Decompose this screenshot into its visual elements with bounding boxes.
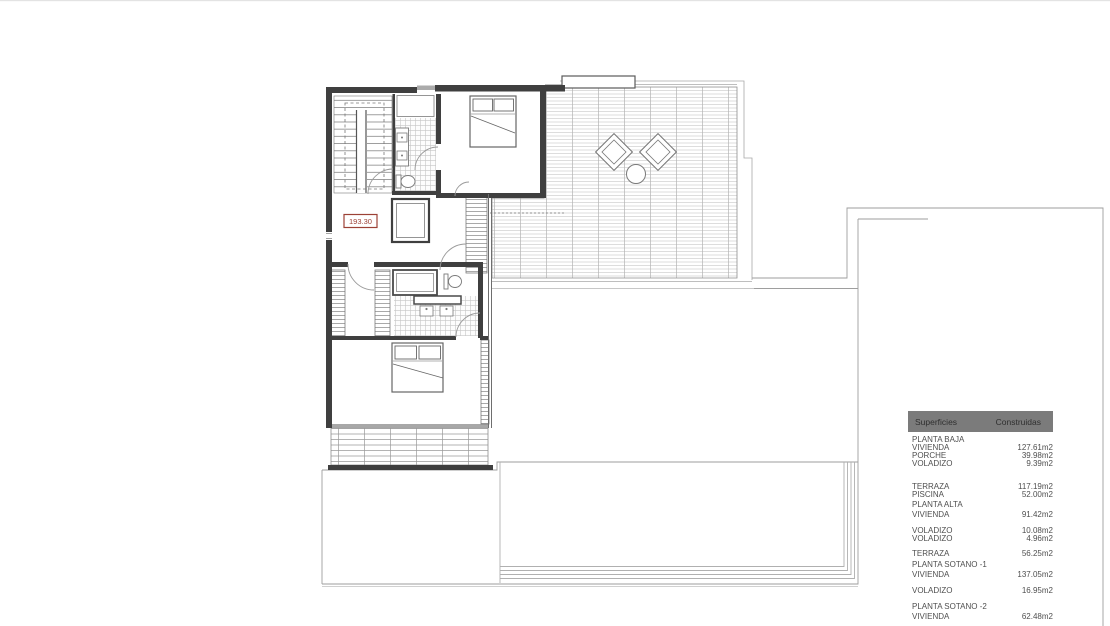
table-row-value: 9.39m2 — [1026, 460, 1053, 468]
exterior-stair-hatch — [466, 197, 487, 273]
elevator-shaft — [392, 199, 429, 242]
bathtub-icon — [393, 270, 437, 295]
table-row: TERRAZA56.25m2 — [908, 550, 1053, 558]
areas-table: Superficies Construidas PLANTA BAJAVIVIE… — [908, 411, 1053, 621]
table-row-label: PLANTA SOTANO -1 — [912, 561, 987, 569]
area-label-text: 193.30 — [349, 217, 372, 226]
bathroom-bottom — [393, 270, 478, 336]
table-row: PLANTA ALTA — [908, 501, 1053, 509]
bedroom-top-bed — [470, 96, 516, 147]
staircase — [334, 96, 392, 193]
door-arc — [348, 264, 374, 290]
table-row-label: VIVIENDA — [912, 613, 949, 621]
table-row: VIVIENDA137.05m2 — [908, 571, 1053, 579]
table-row-value: 91.42m2 — [1022, 511, 1053, 519]
table-row: VOLADIZO4.96m2 — [908, 535, 1053, 543]
entry-threshold — [417, 86, 435, 91]
bedroom-bottom-bed — [392, 343, 443, 392]
table-row: PLANTA SOTANO -2 — [908, 603, 1053, 611]
area-label: 193.30 — [344, 215, 377, 228]
table-row-label: PLANTA SOTANO -2 — [912, 603, 987, 611]
table-row-label: TERRAZA — [912, 550, 949, 558]
ground-platform — [322, 462, 858, 587]
vanity-counter — [414, 296, 461, 304]
pool-step — [500, 462, 855, 579]
bathroom-top — [395, 96, 436, 192]
toilet-icon — [444, 274, 462, 289]
table-row-label: VIVIENDA — [912, 511, 949, 519]
table-row-value: 56.25m2 — [1022, 550, 1053, 558]
table-row: VIVIENDA62.48m2 — [908, 613, 1053, 621]
table-row-label: VOLADIZO — [912, 535, 952, 543]
pool-step — [500, 462, 851, 575]
areas-table-header: Superficies Construidas — [908, 411, 1053, 432]
table-row-value: 16.95m2 — [1022, 587, 1053, 595]
wardrobe-hatch — [330, 270, 345, 337]
shower-icon — [397, 96, 434, 117]
pillow — [395, 346, 417, 359]
pillow — [473, 99, 493, 111]
table-row-value: 52.00m2 — [1022, 491, 1053, 499]
pillow — [494, 99, 514, 111]
table-row: PLANTA SOTANO -1 — [908, 561, 1053, 569]
page-top-border — [0, 0, 1110, 1]
wardrobe-hatch — [375, 270, 390, 337]
table-row-label: VIVIENDA — [912, 571, 949, 579]
table-row-label: VOLADIZO — [912, 460, 952, 468]
pillow — [419, 346, 441, 359]
deck-terrace — [490, 81, 754, 289]
pool-step — [500, 462, 844, 567]
patio-table-icon — [627, 165, 646, 184]
roof-overhang — [562, 76, 635, 88]
table-row-value: 137.05m2 — [1017, 571, 1053, 579]
sink-icon — [420, 306, 433, 316]
right-wing-wall-line — [489, 194, 492, 428]
pool-step — [500, 462, 848, 571]
areas-table-rows: PLANTA BAJAVIVIENDA127.61m2PORCHE39.98m2… — [908, 436, 1053, 621]
toilet-icon — [396, 175, 415, 188]
table-row-label: PISCINA — [912, 491, 944, 499]
table-row-value: 62.48m2 — [1022, 613, 1053, 621]
wall-hatch — [481, 340, 489, 424]
sink-icon — [440, 306, 453, 316]
pool — [500, 462, 855, 583]
table-row: PISCINA52.00m2 — [908, 491, 1053, 499]
table-row: VOLADIZO16.95m2 — [908, 587, 1053, 595]
table-row-label: VOLADIZO — [912, 587, 952, 595]
table-row: VIVIENDA91.42m2 — [908, 511, 1053, 519]
window-icon — [326, 234, 332, 239]
table-row-value: 4.96m2 — [1026, 535, 1053, 543]
table-row-label: PLANTA ALTA — [912, 501, 963, 509]
areas-table-header-construidas: Construidas — [996, 417, 1041, 427]
areas-table-header-superficies: Superficies — [915, 417, 957, 427]
table-row: VOLADIZO9.39m2 — [908, 460, 1053, 468]
floor-plan-page: 193.30 Superficies Construidas PLANTA BA… — [0, 0, 1110, 626]
lower-terrace — [329, 424, 489, 465]
